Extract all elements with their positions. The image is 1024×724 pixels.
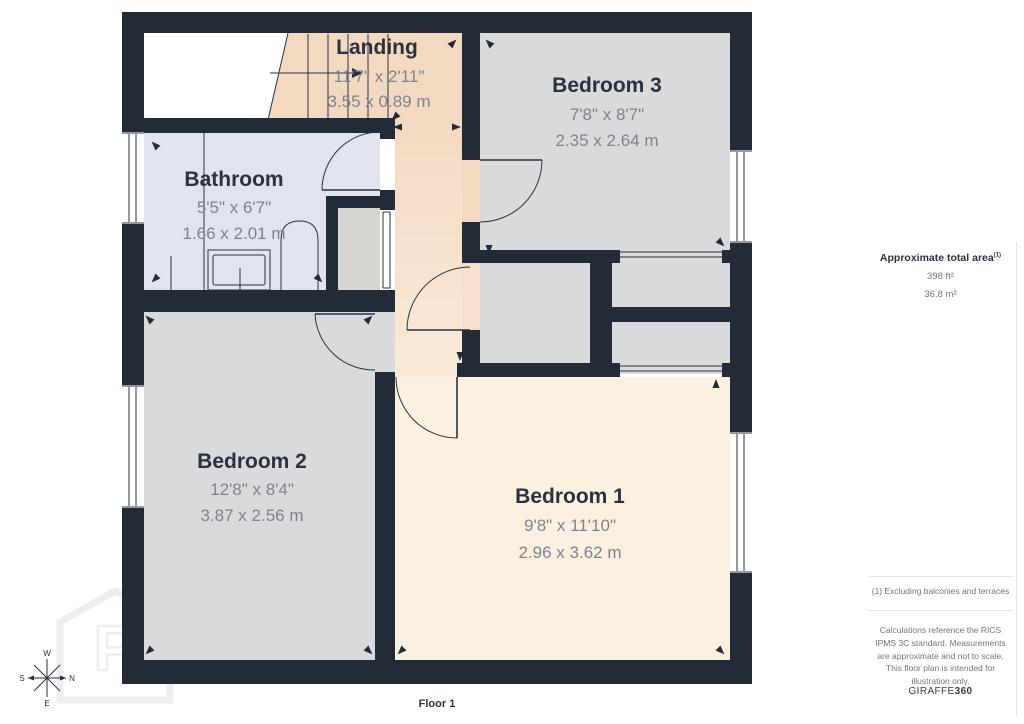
info-sidebar: Approximate total area(1) 398 ft² 36.8 m… [865, 0, 1016, 724]
floorplan-page: P [0, 0, 1024, 724]
compass-arrow-left [28, 676, 34, 681]
brand-logo: GIRAFFE360 [865, 686, 1016, 697]
room-name: Bathroom [184, 168, 283, 191]
floor-hallway [395, 120, 462, 377]
room-dims-m: 3.55 x 0.89 m [327, 92, 430, 111]
footnote-text: (1) Excluding balconies and terraces [865, 586, 1016, 596]
room-dims-ft: 9'8" x 11'10" [524, 516, 616, 535]
room-name: Landing [336, 36, 418, 59]
room-dims-ft: 12'8" x 8'4" [210, 480, 294, 499]
compass-right: N [69, 674, 75, 683]
room-name: Bedroom 3 [552, 74, 662, 97]
label-bedroom1: Bedroom 1 9'8" x 11'10" 2.96 x 3.62 m [515, 485, 625, 562]
label-landing: Landing 11'7" x 2'11" 3.55 x 0.89 m [327, 36, 430, 111]
sidebar-right-rule [1016, 242, 1017, 716]
room-dims-ft: 7'8" x 8'7" [570, 105, 644, 124]
room-dims-m: 1.66 x 2.01 m [182, 224, 285, 243]
room-name: Bedroom 2 [197, 450, 307, 473]
room-dims-m: 3.87 x 2.56 m [200, 506, 303, 525]
closet-folding-door [383, 212, 390, 288]
floor-wardrobe-top [612, 258, 730, 307]
window-bedroom3 [730, 150, 752, 243]
total-area-title-text: Approximate total area [880, 252, 994, 264]
window-bedroom1 [730, 432, 752, 573]
room-name: Bedroom 1 [515, 485, 625, 508]
compass-bottom: E [44, 699, 49, 708]
floor-doorway-store [462, 263, 480, 330]
room-dims-ft: 5'5" x 6'7" [197, 198, 271, 217]
total-area-m: 36.8 m² [865, 289, 1016, 300]
floor-doorway-bedroom3 [462, 160, 480, 222]
floor-doorway-bedroom2 [375, 312, 395, 372]
total-area-footnote-ref: (1) [994, 253, 1001, 259]
window-bedroom2 [122, 385, 144, 508]
room-dims-m: 2.96 x 3.62 m [518, 543, 621, 562]
label-bathroom: Bathroom 5'5" x 6'7" 1.66 x 2.01 m [182, 168, 285, 243]
room-dims-ft: 11'7" x 2'11" [334, 67, 425, 86]
total-area-title: Approximate total area(1) [865, 252, 1016, 264]
total-area-ft: 398 ft² [865, 271, 1016, 282]
compass-left: S [19, 674, 24, 683]
brand-suffix: 360 [955, 686, 973, 697]
brand-prefix: GIRAFFE [908, 686, 954, 697]
sidebar-divider [868, 610, 1013, 611]
window-bathroom [122, 132, 144, 224]
label-bedroom2: Bedroom 2 12'8" x 8'4" 3.87 x 2.56 m [197, 450, 307, 525]
compass-top: W [43, 649, 51, 658]
sidebar-divider [868, 576, 1013, 577]
total-area-block: Approximate total area(1) 398 ft² 36.8 m… [865, 252, 1016, 300]
stairwell-void [144, 33, 288, 120]
floor-label: Floor 1 [122, 698, 752, 710]
room-dims-m: 2.35 x 2.64 m [555, 131, 658, 150]
disclaimer-text: Calculations reference the RICS IPMS 3C … [872, 624, 1009, 688]
floor-closet [338, 208, 380, 290]
floor-store-room [480, 263, 590, 363]
